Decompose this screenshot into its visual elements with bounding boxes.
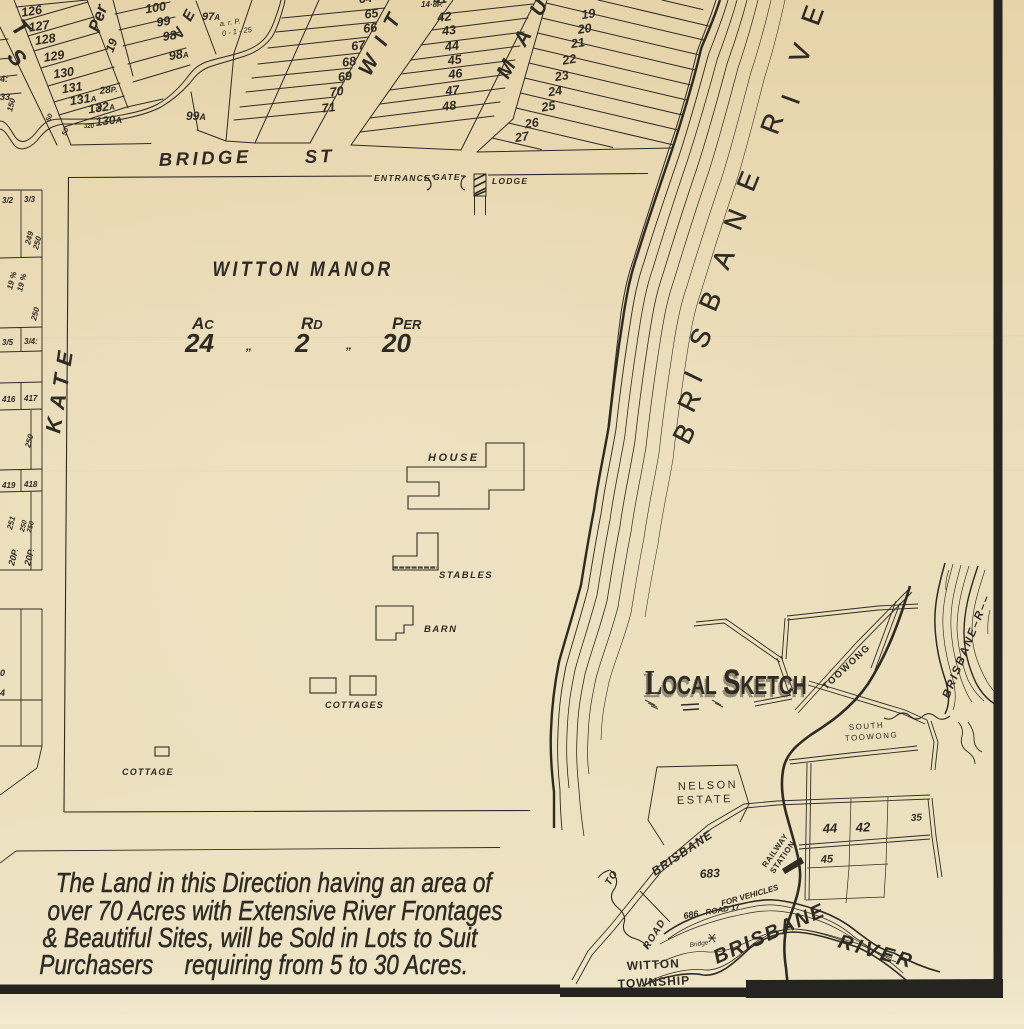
svg-text:70: 70 xyxy=(329,84,345,100)
svg-text:GATE: GATE xyxy=(433,172,461,182)
svg-text:ST: ST xyxy=(304,145,334,167)
svg-text:Purchasers requiring from: Purchasers requiring from 5 to 30 Acres. xyxy=(39,950,468,981)
svg-text:3/2: 3/2 xyxy=(2,196,14,205)
svg-text:24: 24 xyxy=(184,328,214,358)
svg-text:19: 19 xyxy=(580,6,596,22)
svg-text:WITTON MANOR: WITTON MANOR xyxy=(213,258,394,282)
svg-text:NELSON: NELSON xyxy=(678,779,739,793)
svg-text:4: 4 xyxy=(0,688,5,698)
svg-text:47: 47 xyxy=(444,83,462,99)
svg-text:46: 46 xyxy=(447,66,465,82)
svg-text:416: 416 xyxy=(1,395,16,404)
svg-text:320: 320 xyxy=(84,124,95,130)
svg-text:99: 99 xyxy=(155,14,171,30)
svg-text:419: 419 xyxy=(1,481,16,490)
svg-text:ENTRANCE: ENTRANCE xyxy=(374,173,431,183)
svg-text:418: 418 xyxy=(23,480,38,489)
svg-text:STABLES: STABLES xyxy=(439,570,493,581)
svg-text:42: 42 xyxy=(854,819,871,835)
svg-text:ESTATE: ESTATE xyxy=(677,793,734,807)
svg-text:3/5: 3/5 xyxy=(2,338,14,347)
svg-text:BARN: BARN xyxy=(424,624,457,635)
svg-text:22: 22 xyxy=(560,52,577,68)
svg-text:WITTON: WITTON xyxy=(626,956,680,973)
svg-text:0: 0 xyxy=(0,668,5,678)
svg-text:43: 43 xyxy=(440,23,457,39)
svg-text:2: 2 xyxy=(294,328,310,358)
svg-text:48: 48 xyxy=(440,98,457,114)
svg-text:23: 23 xyxy=(553,68,570,84)
svg-text:21: 21 xyxy=(569,35,586,51)
svg-text:4:: 4: xyxy=(0,74,8,84)
svg-text:97A: 97A xyxy=(202,11,220,23)
svg-text:„: „ xyxy=(345,338,352,352)
svg-text:69: 69 xyxy=(337,69,353,85)
svg-text:683: 683 xyxy=(699,866,720,881)
svg-text:3/4:: 3/4: xyxy=(24,337,38,346)
svg-text:COTTAGE: COTTAGE xyxy=(122,767,174,777)
svg-text:LODGE: LODGE xyxy=(492,176,528,186)
svg-text:24: 24 xyxy=(546,83,563,99)
svg-text:417: 417 xyxy=(23,394,38,403)
svg-text:44: 44 xyxy=(821,820,838,836)
svg-text:COTTAGES: COTTAGES xyxy=(325,700,384,710)
svg-text:65: 65 xyxy=(364,6,381,22)
svg-text:20: 20 xyxy=(381,328,411,358)
svg-text:The Land in this Direction hav: The Land in this Direction having an are… xyxy=(56,868,495,899)
svg-text:45: 45 xyxy=(820,853,835,866)
svg-text:71: 71 xyxy=(321,100,337,116)
svg-text:„: „ xyxy=(245,339,252,353)
svg-text:35: 35 xyxy=(911,812,923,824)
svg-text:BRIDGE: BRIDGE xyxy=(158,146,252,170)
svg-text:99A: 99A xyxy=(186,109,206,123)
svg-text:HOUSE: HOUSE xyxy=(428,452,480,464)
svg-text:3/3: 3/3 xyxy=(24,195,36,204)
svg-text:20: 20 xyxy=(576,21,593,37)
